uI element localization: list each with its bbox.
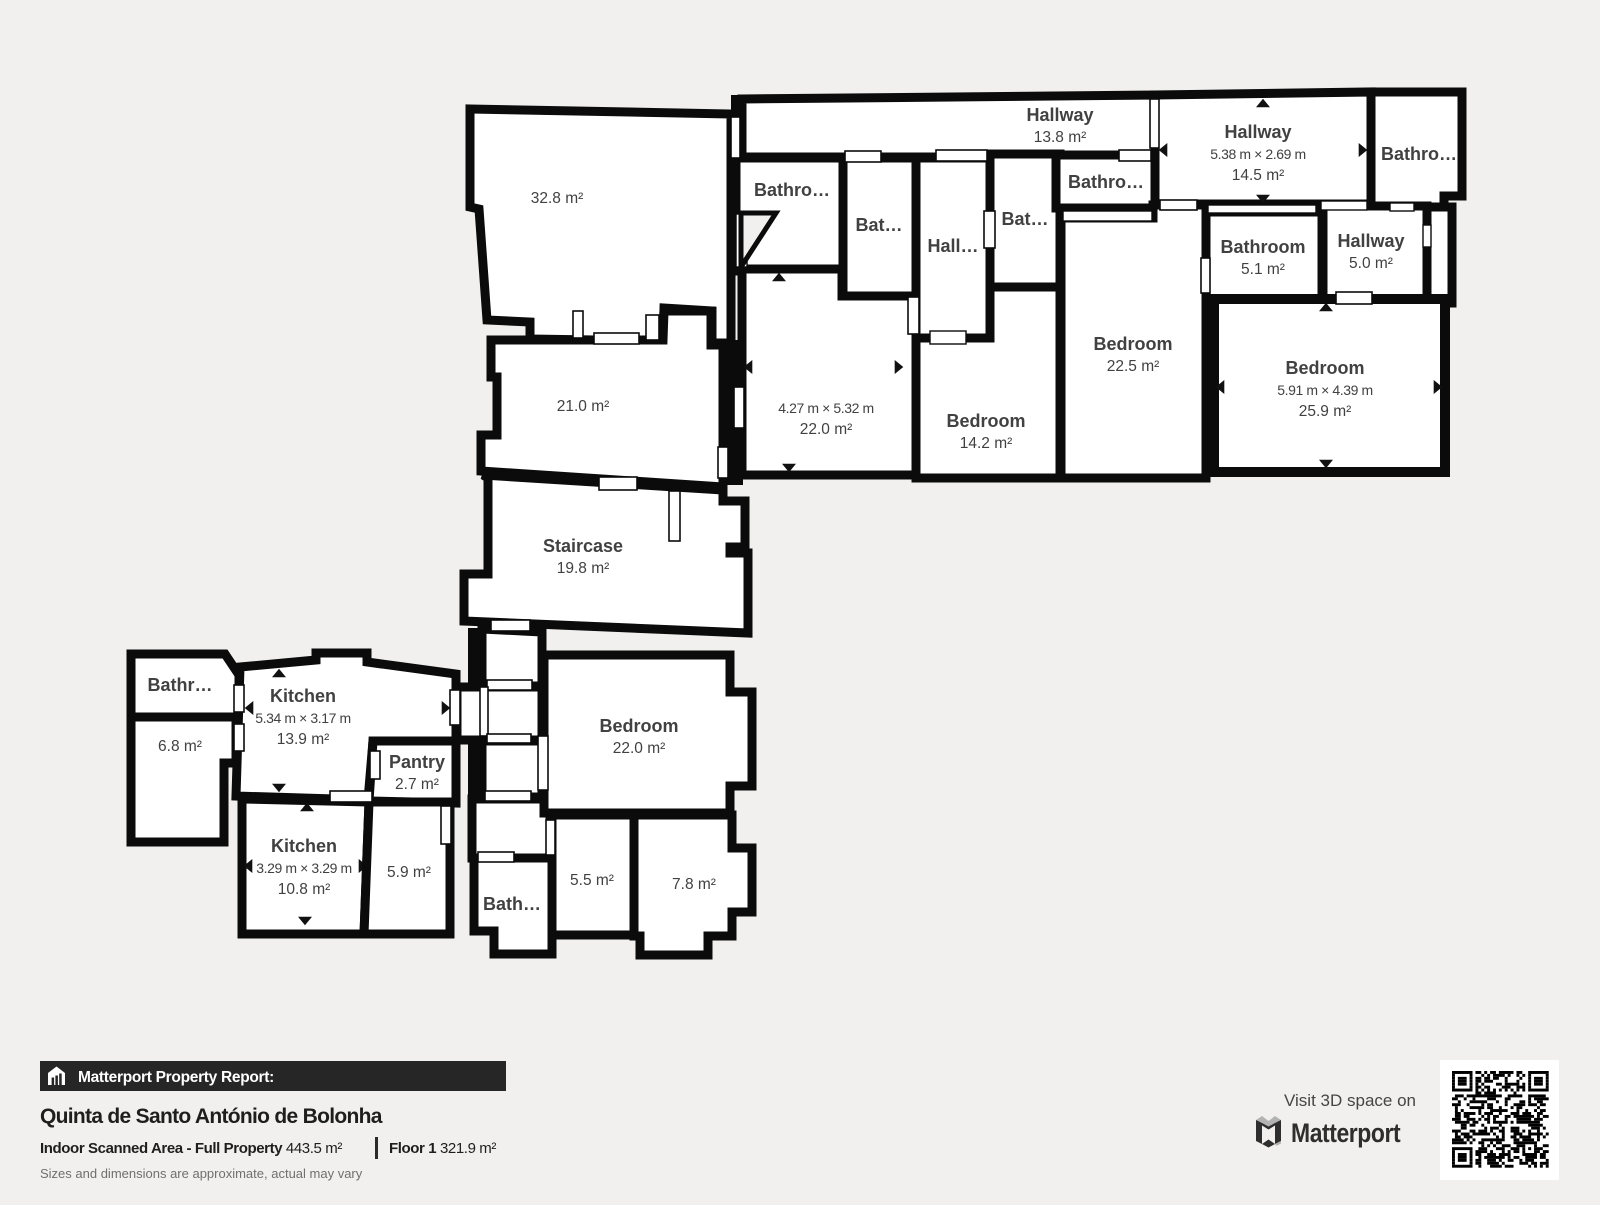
svg-text:10.8 m²: 10.8 m²: [278, 881, 331, 898]
svg-text:25.9 m²: 25.9 m²: [1299, 403, 1352, 420]
svg-text:5.34 m × 3.17 m: 5.34 m × 3.17 m: [255, 710, 351, 726]
svg-text:Bat…: Bat…: [855, 215, 902, 235]
svg-text:Hallway: Hallway: [1224, 122, 1291, 142]
svg-text:13.8 m²: 13.8 m²: [1034, 129, 1087, 146]
svg-text:5.38 m × 2.69 m: 5.38 m × 2.69 m: [1210, 146, 1306, 162]
svg-text:Hall…: Hall…: [927, 236, 978, 256]
svg-text:13.9 m²: 13.9 m²: [277, 731, 330, 748]
svg-text:3.29 m × 3.29 m: 3.29 m × 3.29 m: [256, 860, 352, 876]
svg-text:Bedroom: Bedroom: [946, 411, 1025, 431]
svg-text:22.5 m²: 22.5 m²: [1107, 358, 1160, 375]
svg-text:Hallway: Hallway: [1026, 105, 1093, 125]
svg-text:Bathro…: Bathro…: [1381, 144, 1457, 164]
svg-text:22.0 m²: 22.0 m²: [800, 421, 853, 438]
svg-text:5.91 m × 4.39 m: 5.91 m × 4.39 m: [1277, 382, 1373, 398]
svg-text:Bedroom: Bedroom: [599, 716, 678, 736]
svg-text:32.8 m²: 32.8 m²: [531, 190, 584, 207]
svg-text:2.7 m²: 2.7 m²: [395, 776, 439, 793]
svg-text:14.2 m²: 14.2 m²: [960, 435, 1013, 452]
svg-text:Kitchen: Kitchen: [271, 836, 337, 856]
svg-text:Hallway: Hallway: [1337, 231, 1404, 251]
svg-text:Bat…: Bat…: [1001, 209, 1048, 229]
svg-text:19.8 m²: 19.8 m²: [557, 560, 610, 577]
svg-text:5.5 m²: 5.5 m²: [570, 872, 614, 889]
svg-text:5.9 m²: 5.9 m²: [387, 864, 431, 881]
svg-text:Pantry: Pantry: [389, 752, 445, 772]
svg-text:Bedroom: Bedroom: [1285, 358, 1364, 378]
svg-text:Kitchen: Kitchen: [270, 686, 336, 706]
svg-text:5.0 m²: 5.0 m²: [1349, 255, 1393, 272]
svg-text:14.5 m²: 14.5 m²: [1232, 167, 1285, 184]
svg-text:Bath…: Bath…: [483, 894, 541, 914]
svg-text:7.8 m²: 7.8 m²: [672, 876, 716, 893]
svg-text:5.1 m²: 5.1 m²: [1241, 261, 1285, 278]
svg-text:21.0 m²: 21.0 m²: [557, 398, 610, 415]
svg-text:Bedroom: Bedroom: [1093, 334, 1172, 354]
svg-text:Bathroom: Bathroom: [1221, 237, 1306, 257]
svg-text:22.0 m²: 22.0 m²: [613, 740, 666, 757]
svg-text:Bathro…: Bathro…: [1068, 172, 1144, 192]
svg-text:6.8 m²: 6.8 m²: [158, 738, 202, 755]
svg-text:Bathro…: Bathro…: [754, 180, 830, 200]
svg-text:4.27 m × 5.32 m: 4.27 m × 5.32 m: [778, 400, 874, 416]
svg-text:Bathr…: Bathr…: [147, 675, 212, 695]
svg-text:Staircase: Staircase: [543, 536, 623, 556]
